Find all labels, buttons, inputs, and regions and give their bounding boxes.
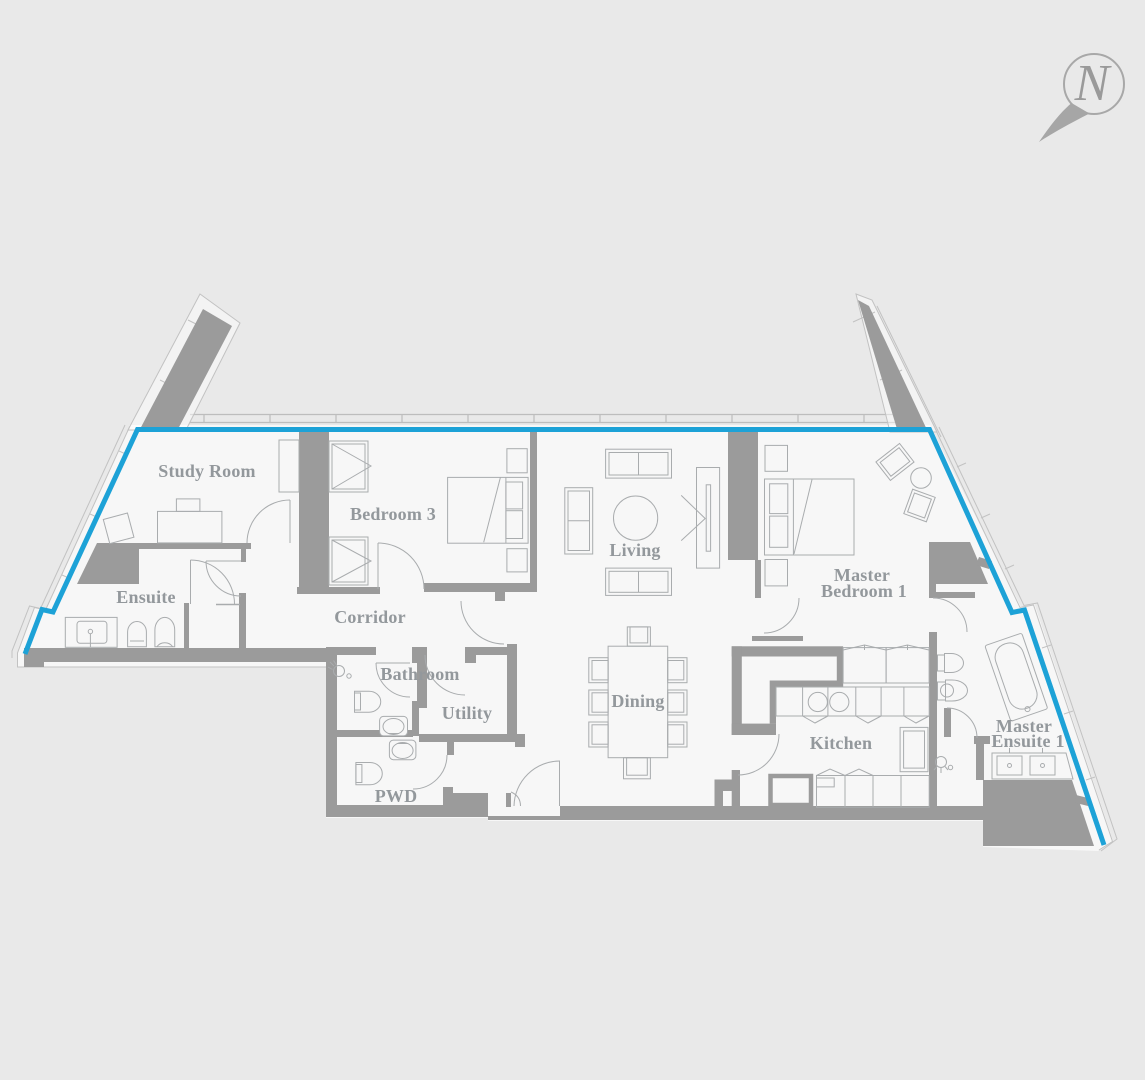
svg-text:Bedroom 1: Bedroom 1 bbox=[821, 581, 907, 601]
svg-text:Ensuite: Ensuite bbox=[116, 587, 175, 607]
svg-text:Bedroom 3: Bedroom 3 bbox=[350, 504, 436, 524]
svg-text:PWD: PWD bbox=[375, 786, 418, 806]
svg-text:Ensuite 1: Ensuite 1 bbox=[991, 731, 1064, 751]
svg-text:Kitchen: Kitchen bbox=[810, 733, 872, 753]
svg-text:Corridor: Corridor bbox=[334, 607, 406, 627]
svg-text:Living: Living bbox=[609, 540, 660, 560]
svg-text:Utility: Utility bbox=[442, 703, 492, 723]
svg-text:Bathroom: Bathroom bbox=[380, 664, 459, 684]
svg-text:Dining: Dining bbox=[611, 691, 664, 711]
svg-text:Study Room: Study Room bbox=[158, 461, 256, 481]
svg-text:N: N bbox=[1074, 55, 1113, 112]
